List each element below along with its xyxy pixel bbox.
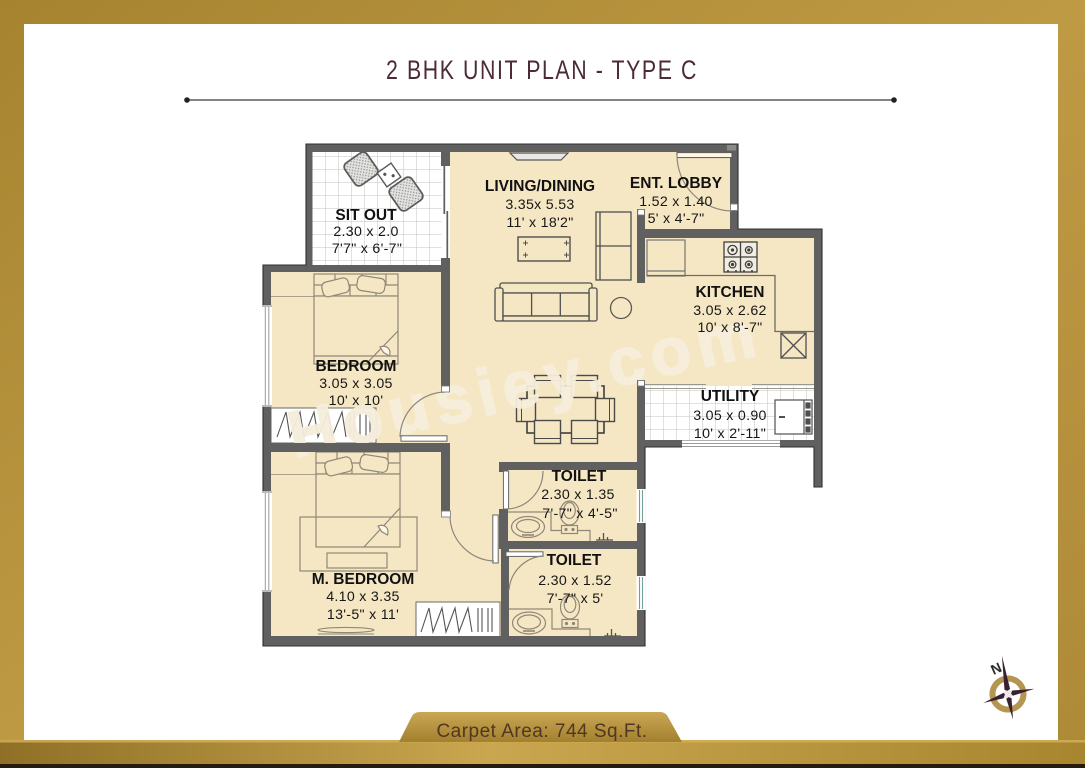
svg-text:4.10 x 3.35: 4.10 x 3.35 (326, 589, 400, 605)
svg-text:SIT OUT: SIT OUT (335, 207, 397, 224)
svg-text:3.05 x 0.90: 3.05 x 0.90 (693, 408, 767, 424)
svg-text:UTILITY: UTILITY (701, 388, 760, 405)
svg-text:TOILET: TOILET (552, 468, 607, 485)
svg-text:7'-7" x 4'-5": 7'-7" x 4'-5" (542, 506, 617, 522)
svg-text:2.30 x 2.0: 2.30 x 2.0 (333, 224, 398, 240)
svg-text:3.35x 5.53: 3.35x 5.53 (505, 197, 574, 213)
svg-text:7'7" x 6'-7": 7'7" x 6'-7" (332, 241, 402, 257)
svg-text:2.30 x 1.52: 2.30 x 1.52 (538, 573, 612, 589)
svg-text:TOILET: TOILET (547, 552, 602, 569)
svg-text:BEDROOM: BEDROOM (316, 358, 397, 375)
svg-text:7'-7" x 5': 7'-7" x 5' (547, 591, 604, 607)
svg-text:5' x 4'-7": 5' x 4'-7" (648, 211, 705, 227)
svg-text:2 BHK UNIT PLAN - TYPE C: 2 BHK UNIT PLAN - TYPE C (386, 55, 698, 85)
svg-text:KITCHEN: KITCHEN (696, 284, 765, 301)
svg-text:LIVING/DINING: LIVING/DINING (485, 178, 595, 195)
svg-text:11' x 18'2": 11' x 18'2" (506, 215, 573, 231)
svg-text:13'-5" x 11': 13'-5" x 11' (327, 607, 399, 623)
svg-text:Carpet Area: 744 Sq.Ft.: Carpet Area: 744 Sq.Ft. (436, 721, 647, 742)
svg-text:10' x 10': 10' x 10' (329, 393, 384, 409)
svg-text:10' x 8'-7": 10' x 8'-7" (697, 320, 762, 336)
svg-text:3.05 x 2.62: 3.05 x 2.62 (693, 303, 767, 319)
svg-text:2.30 x 1.35: 2.30 x 1.35 (541, 487, 615, 503)
svg-text:10' x 2'-11": 10' x 2'-11" (694, 426, 766, 442)
svg-text:3.05 x 3.05: 3.05 x 3.05 (319, 376, 393, 392)
svg-text:M. BEDROOM: M. BEDROOM (312, 571, 414, 588)
svg-text:1.52 x 1.40: 1.52 x 1.40 (639, 194, 713, 210)
svg-text:ENT. LOBBY: ENT. LOBBY (630, 175, 723, 192)
